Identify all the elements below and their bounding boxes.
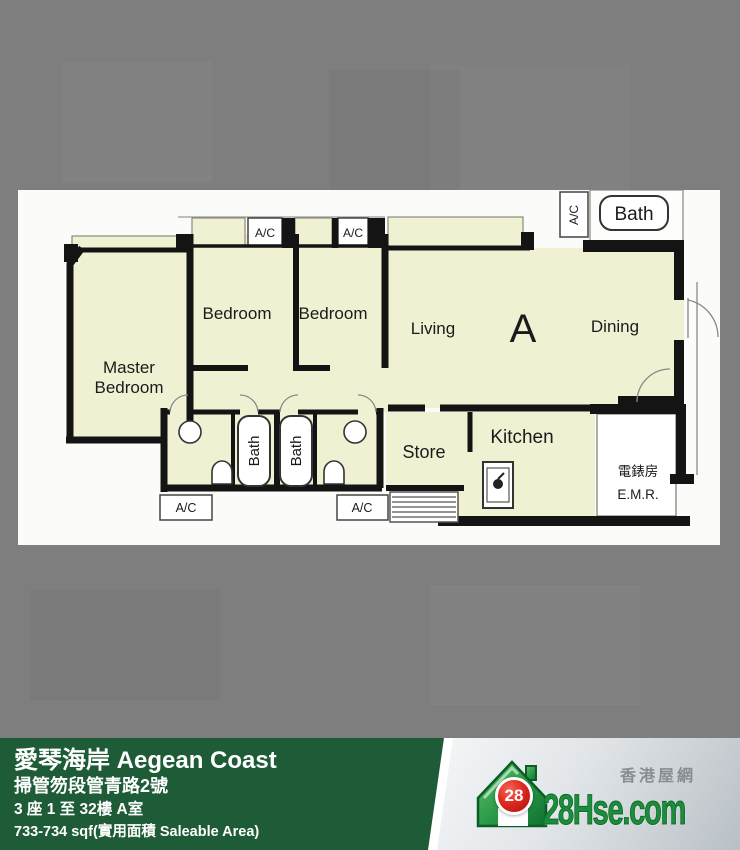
estate-address: 掃管笏段管青路2號 [14, 772, 168, 798]
watermark-ghost [330, 70, 460, 190]
window-bedroom-2 [295, 218, 332, 246]
basin-ensuite [179, 421, 201, 443]
label-bath-entrance: Bath [614, 204, 653, 225]
floorplan-panel: Master Bedroom Bedroom Bedroom Living A … [18, 190, 720, 545]
label-dining: Dining [591, 317, 639, 336]
label-ac-side: A/C [567, 205, 581, 225]
room-bedroom-2 [296, 234, 385, 368]
label-ac-top-2: A/C [343, 226, 363, 240]
toilet-bath2 [324, 461, 344, 484]
block-floor-flat: 3 座 1 至 32樓 A室 [14, 797, 143, 819]
label-emr-cn: 電錶房 [618, 464, 659, 479]
label-unit-a: A [510, 307, 537, 351]
toilet-ensuite [212, 461, 232, 484]
label-bedroom-2: Bedroom [299, 304, 368, 323]
basin-bath2 [344, 421, 366, 443]
badge-28: 28 [495, 777, 533, 815]
label-bedroom-1: Bedroom [203, 304, 272, 323]
label-bathtub-2: Bath [288, 436, 305, 467]
estate-name: 愛琴海岸 Aegean Coast [14, 740, 277, 775]
window-living [388, 217, 523, 247]
watermark-ghost [430, 585, 640, 705]
watermark-ghost [430, 65, 630, 195]
label-emr-en: E.M.R. [617, 487, 658, 502]
brand-name: 28Hse.com [543, 786, 685, 835]
saleable-area: 733-734 sqf(實用面積 Saleable Area) [14, 820, 259, 841]
window-bedroom-1 [192, 218, 245, 246]
floorplan-drawing: Master Bedroom Bedroom Bedroom Living A … [18, 190, 720, 545]
corridor [162, 368, 388, 412]
label-living: Living [411, 319, 455, 338]
label-store: Store [402, 442, 445, 462]
label-bathtub-1: Bath [246, 436, 263, 467]
label-ac-bottom-1: A/C [176, 501, 197, 515]
label-kitchen: Kitchen [490, 427, 553, 448]
watermark-ghost [30, 590, 220, 700]
label-master-1: Master [103, 358, 155, 377]
label-ac-top-1: A/C [255, 226, 275, 240]
screenshot-root: Master Bedroom Bedroom Bedroom Living A … [0, 0, 740, 850]
label-ac-bottom-2: A/C [352, 501, 373, 515]
site-tagline: 香港屋網 [620, 762, 696, 786]
watermark-ghost [62, 62, 212, 182]
room-bedroom-1 [190, 234, 296, 368]
label-master-2: Bedroom [95, 378, 164, 397]
grille [390, 492, 458, 522]
